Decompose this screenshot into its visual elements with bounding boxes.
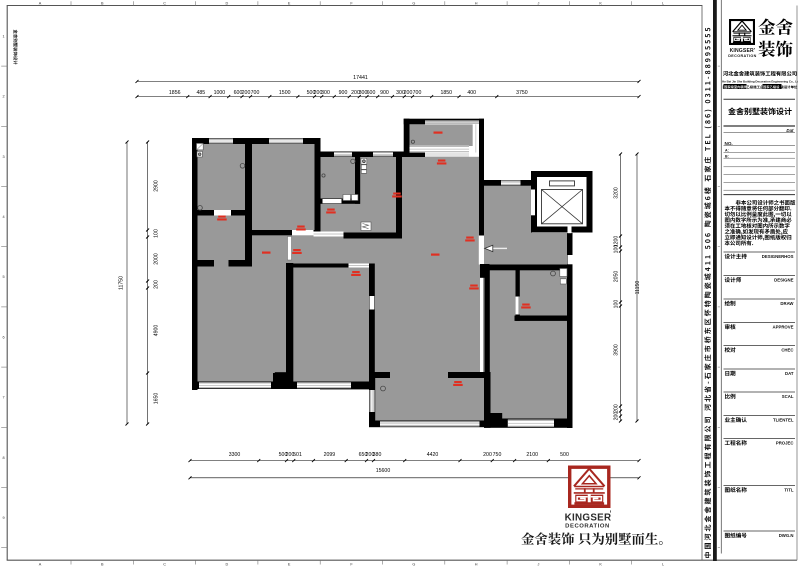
svg-text:900: 900 [380, 90, 389, 96]
svg-text:7: 7 [3, 396, 5, 400]
svg-text:CHEC: CHEC [781, 347, 793, 352]
svg-text:A: A [39, 1, 42, 5]
svg-text:485: 485 [196, 90, 205, 96]
svg-text:PROJEC: PROJEC [776, 440, 794, 445]
svg-text:D: D [226, 563, 229, 567]
svg-text:3900: 3900 [614, 344, 620, 356]
svg-text:400: 400 [467, 90, 476, 96]
svg-text:B:: B: [725, 155, 729, 159]
svg-text:TITL: TITL [784, 487, 793, 492]
svg-text:700: 700 [413, 90, 422, 96]
svg-text:4420: 4420 [427, 452, 439, 458]
svg-text:E: E [288, 1, 291, 5]
svg-text:6: 6 [3, 335, 5, 339]
svg-text:G: G [412, 563, 415, 567]
svg-text:1: 1 [3, 34, 5, 38]
svg-text:5: 5 [3, 275, 5, 279]
svg-text:500: 500 [560, 452, 569, 458]
svg-text:H: H [475, 563, 478, 567]
svg-text:100: 100 [614, 245, 620, 254]
svg-text:C: C [163, 1, 166, 5]
svg-text:100: 100 [614, 300, 620, 309]
svg-text:K: K [599, 1, 602, 5]
svg-text:11150: 11150 [635, 281, 641, 295]
svg-text:15600: 15600 [376, 468, 391, 474]
svg-text:H: H [475, 1, 478, 5]
svg-text:17441: 17441 [353, 75, 368, 81]
svg-text:DECORATION: DECORATION [565, 524, 610, 530]
svg-text:4: 4 [3, 215, 5, 219]
svg-text:200: 200 [614, 412, 620, 421]
svg-text:2: 2 [3, 95, 5, 99]
svg-text:750: 750 [493, 452, 502, 458]
svg-text:NO.: NO. [725, 141, 733, 146]
svg-text:2099: 2099 [324, 452, 336, 458]
svg-text:3300: 3300 [229, 452, 241, 458]
svg-text:2050: 2050 [614, 271, 620, 283]
svg-text:C: C [163, 563, 166, 567]
svg-text:DAT: DAT [785, 371, 794, 376]
svg-text:KINGSER: KINGSER [565, 512, 612, 523]
svg-text:SCAL: SCAL [782, 394, 794, 399]
svg-text:D: D [226, 1, 229, 5]
svg-text:3: 3 [3, 155, 5, 159]
svg-text:4900: 4900 [153, 325, 159, 337]
svg-text:Dat: Dat [786, 128, 794, 133]
svg-text:L: L [662, 1, 664, 5]
svg-text:APPROVE: APPROVE [772, 324, 793, 329]
svg-text:8: 8 [3, 456, 5, 460]
svg-text:L: L [662, 563, 664, 567]
svg-text:1650: 1650 [153, 393, 159, 405]
svg-text:3200: 3200 [614, 187, 620, 199]
svg-text:700: 700 [251, 90, 260, 96]
svg-text:2000: 2000 [153, 253, 159, 265]
svg-text:DWG.N: DWG.N [779, 533, 794, 538]
svg-text:501: 501 [293, 452, 302, 458]
svg-text:11750: 11750 [118, 276, 124, 290]
svg-text:KINGSER’: KINGSER’ [730, 48, 756, 54]
svg-text:300: 300 [321, 90, 330, 96]
svg-text:3750: 3750 [516, 90, 528, 96]
svg-text:200: 200 [483, 452, 492, 458]
svg-text:200: 200 [404, 90, 413, 96]
svg-text:100: 100 [153, 229, 159, 238]
svg-text:DRAW: DRAW [780, 301, 794, 306]
svg-text:B: B [101, 1, 104, 5]
svg-text:2900: 2900 [153, 180, 159, 192]
svg-text:2100: 2100 [526, 452, 538, 458]
svg-text:B: B [101, 563, 104, 567]
svg-text:J: J [537, 563, 539, 567]
svg-text:1000: 1000 [214, 90, 226, 96]
svg-text:DESIGNE: DESIGNE [774, 277, 793, 282]
svg-text:200: 200 [153, 280, 159, 289]
svg-text:TLIENTEL: TLIENTEL [773, 417, 794, 422]
svg-text:200: 200 [614, 404, 620, 413]
svg-text:He Bei Jin She Building Decora: He Bei Jin She Building Decoration Engin… [722, 79, 798, 83]
svg-text:K: K [599, 563, 602, 567]
svg-text:E: E [288, 563, 291, 567]
svg-text:J: J [537, 1, 539, 5]
svg-text:’: ’ [610, 511, 612, 518]
svg-text:900: 900 [339, 90, 348, 96]
svg-text:DECORATION: DECORATION [728, 54, 757, 58]
svg-text:G: G [412, 1, 415, 5]
svg-text:1856: 1856 [169, 90, 181, 96]
svg-text:1500: 1500 [279, 90, 291, 96]
svg-text:DESIGNERHOS: DESIGNERHOS [762, 254, 794, 259]
svg-text:9: 9 [3, 516, 5, 520]
svg-text:A: A [39, 563, 42, 567]
svg-text:380: 380 [373, 452, 382, 458]
svg-text:1850: 1850 [441, 90, 453, 96]
svg-text:A:: A: [725, 149, 729, 153]
